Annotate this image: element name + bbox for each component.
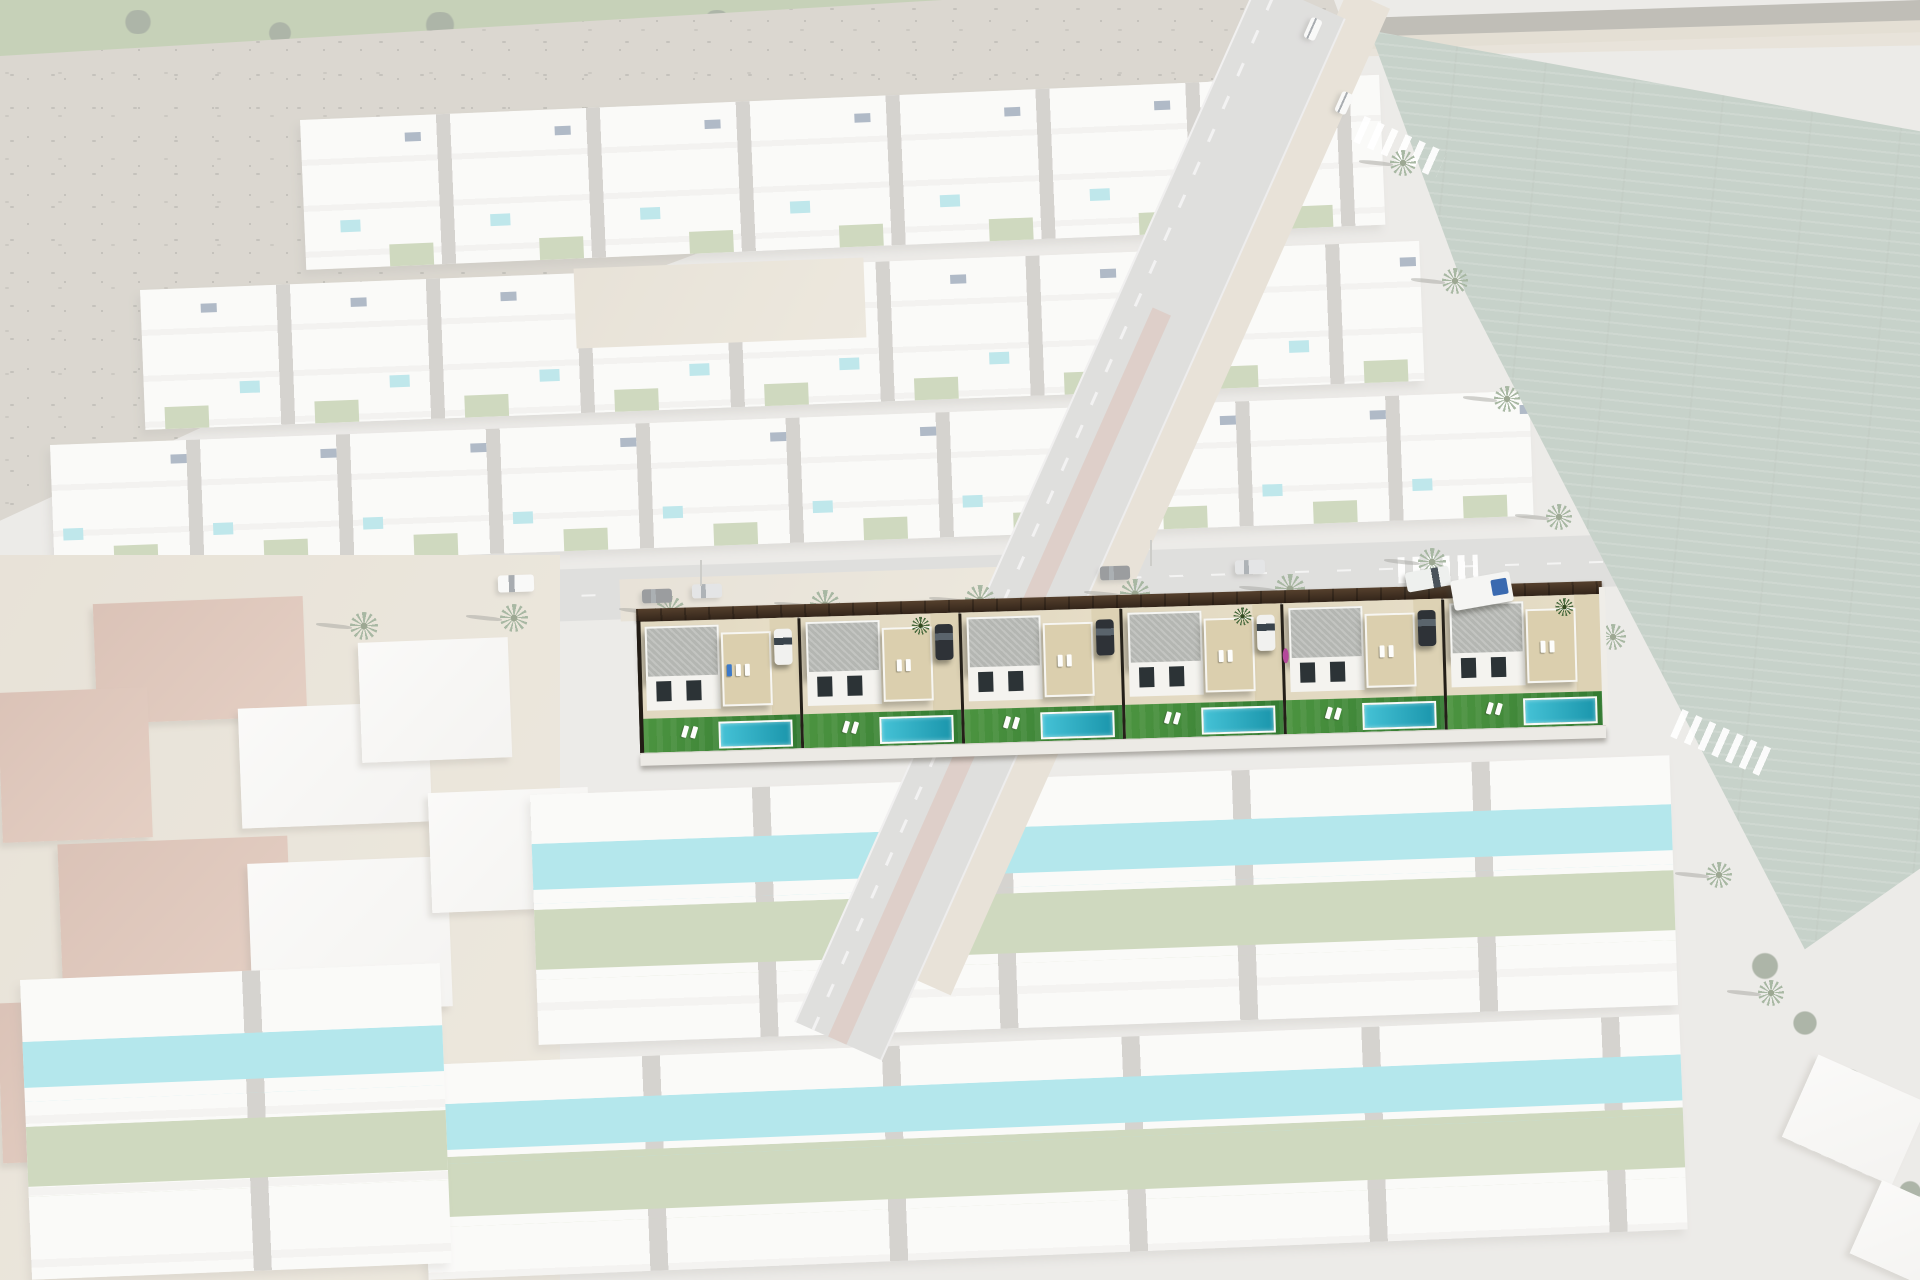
dark-car: [1100, 565, 1130, 580]
palm-tree-icon: [1390, 150, 1416, 176]
sand-lot: [574, 257, 867, 348]
golf-tree-icon: [120, 10, 156, 34]
parked-car: [1096, 619, 1115, 656]
parked-car: [1417, 610, 1436, 647]
villa-unit: [636, 602, 802, 765]
pool-lounger: [1003, 716, 1011, 729]
swimming-pool: [1523, 696, 1598, 725]
blue-sun-lounger: [727, 664, 732, 676]
sun-lounger: [1227, 650, 1232, 662]
garden-lawn: [803, 710, 962, 749]
villa-solarium: [721, 631, 773, 706]
lamp-post: [700, 560, 702, 586]
villa-unit: [1119, 588, 1285, 751]
white-villa-shell: [1782, 1054, 1920, 1185]
sun-lounger: [1549, 640, 1554, 652]
lamp-post: [1150, 540, 1152, 566]
window: [1139, 667, 1155, 687]
window: [656, 681, 672, 701]
villa-solarium: [1043, 622, 1095, 697]
garden-lawn: [1286, 696, 1445, 735]
sun-lounger: [897, 659, 902, 671]
villa-roof: [645, 625, 721, 681]
swimming-pool: [718, 720, 793, 749]
silver-car: [1235, 559, 1265, 574]
palm-tree-icon: [1494, 386, 1520, 412]
faded-villa-row: [20, 963, 452, 1280]
sun-lounger: [1388, 645, 1393, 657]
palm-tree-icon: [1758, 980, 1784, 1006]
sun-lounger: [1058, 655, 1063, 667]
pool-lounger: [1325, 707, 1333, 720]
palm-tree-icon: [1442, 268, 1468, 294]
garden-lawn: [1125, 700, 1284, 739]
window: [1491, 657, 1507, 677]
pool-lounger: [851, 721, 859, 734]
garden-lawn: [642, 714, 801, 753]
pool-lounger: [1012, 717, 1020, 730]
brick-villa-shell: [0, 687, 153, 843]
villa-roof: [1288, 606, 1364, 662]
swimming-pool: [1201, 706, 1276, 735]
villa-unit: [958, 593, 1124, 756]
sun-lounger: [906, 659, 911, 671]
parked-car: [1256, 615, 1275, 652]
window: [847, 675, 863, 695]
pool-lounger: [1173, 712, 1181, 725]
faded-villa-row: [530, 755, 1678, 1045]
sun-lounger: [745, 664, 750, 676]
pool-lounger: [1334, 707, 1342, 720]
aerial-photo: [0, 0, 1920, 1280]
swimming-pool: [1362, 701, 1437, 730]
window: [1300, 662, 1316, 682]
dark-car: [642, 588, 672, 603]
sun-lounger: [1379, 645, 1384, 657]
pool-lounger: [690, 726, 698, 739]
villa-facade: [1451, 651, 1526, 687]
palm-tree-icon: [350, 612, 378, 640]
roadside-tree-icon: [1790, 1010, 1820, 1036]
window: [1008, 671, 1024, 691]
villa-facade: [968, 665, 1043, 701]
villa-roof: [1127, 611, 1203, 667]
pool-lounger: [1164, 711, 1172, 724]
bougainvillea-icon: [1282, 648, 1288, 663]
garden-lawn: [1447, 691, 1606, 730]
sun-lounger: [1067, 654, 1072, 666]
silver-car: [692, 583, 722, 598]
white-van: [498, 574, 535, 592]
palm-tree-icon: [500, 604, 528, 632]
window: [1330, 661, 1346, 681]
pool-lounger: [842, 721, 850, 734]
pool-lounger: [1495, 703, 1503, 716]
villa-roof: [966, 615, 1042, 671]
villa-solarium: [1365, 612, 1417, 687]
window: [1169, 666, 1185, 686]
villa-roof: [806, 620, 882, 676]
sun-lounger: [1218, 650, 1223, 662]
white-villa-shell: [358, 637, 512, 763]
faded-villa-row: [420, 1014, 1688, 1279]
swimming-pool: [1040, 710, 1115, 739]
window: [817, 676, 833, 696]
villa-solarium: [882, 626, 934, 701]
villa-facade: [1290, 656, 1365, 692]
villa-unit: [1280, 584, 1446, 747]
villa-solarium: [1204, 617, 1256, 692]
villa-unit: [797, 598, 963, 761]
sun-lounger: [1540, 641, 1545, 653]
swimming-pool: [879, 715, 954, 744]
sun-lounger: [736, 664, 741, 676]
villa-facade: [646, 675, 721, 711]
roadside-tree-icon: [1748, 952, 1782, 980]
window: [978, 672, 994, 692]
white-villa-shell: [1850, 1180, 1920, 1280]
window: [1461, 658, 1477, 678]
villa-facade: [807, 670, 882, 706]
blue-tarp: [1490, 578, 1509, 597]
pool-lounger: [681, 725, 689, 738]
palm-tree-icon: [1706, 862, 1732, 888]
villa-solarium: [1525, 608, 1577, 683]
palm-tree-icon: [1546, 504, 1572, 530]
villa-facade: [1129, 661, 1204, 697]
window: [686, 680, 702, 700]
pool-lounger: [1486, 702, 1494, 715]
parked-car: [935, 624, 954, 661]
parked-car: [774, 628, 793, 665]
garden-lawn: [964, 705, 1123, 744]
